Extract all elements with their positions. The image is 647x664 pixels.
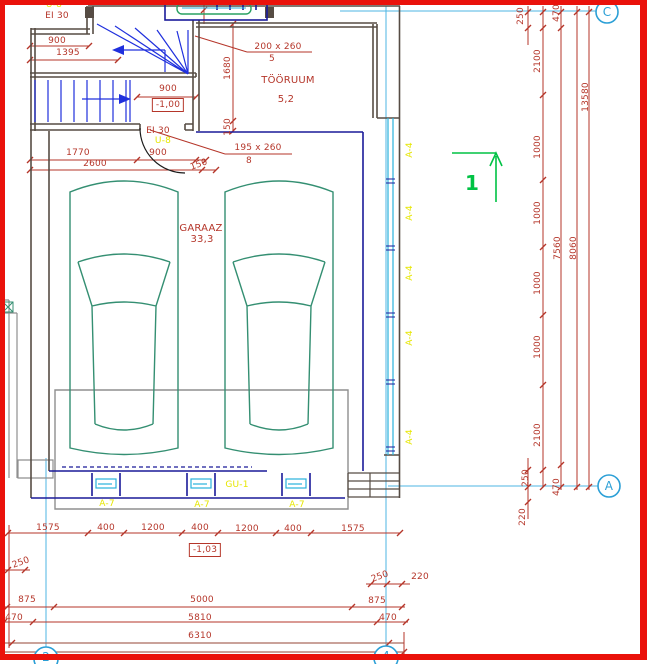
dim-label: 7560 bbox=[553, 236, 563, 260]
dim-label: 1000 bbox=[533, 135, 543, 159]
fire-rating: EI 30 bbox=[45, 11, 69, 21]
dim-label: 1395 bbox=[56, 48, 80, 58]
door-number: 8 bbox=[246, 156, 252, 166]
dim-label: 1575 bbox=[36, 523, 60, 533]
labels-layer: U-8EI 309001395900-1,00EI 30U-8177090015… bbox=[0, 0, 647, 664]
door-size: 200 x 260 bbox=[254, 42, 301, 52]
component-tag: A-7 bbox=[289, 500, 305, 510]
dim-label: 1000 bbox=[533, 201, 543, 225]
dim-label: 400 bbox=[97, 523, 115, 533]
dim-label: 250 bbox=[11, 555, 31, 570]
dim-label: 875 bbox=[18, 595, 36, 605]
dim-label: 13580 bbox=[581, 82, 591, 112]
grid-label: A bbox=[605, 481, 613, 491]
floor-plan-sheet: U-8EI 309001395900-1,00EI 30U-8177090015… bbox=[0, 0, 647, 664]
dim-label: 150 bbox=[223, 118, 233, 136]
dim-label: 2100 bbox=[533, 423, 543, 447]
dim-label: 1680 bbox=[223, 56, 233, 80]
door-size: 195 x 260 bbox=[234, 143, 281, 153]
dim-label: 1000 bbox=[533, 335, 543, 359]
room-area: 5,2 bbox=[278, 95, 295, 105]
room-area: 33,3 bbox=[190, 235, 213, 245]
dim-label: 150 bbox=[189, 157, 209, 172]
dim-label: 470 bbox=[5, 613, 23, 623]
level-marker: -1,03 bbox=[189, 543, 221, 557]
dim-label: 900 bbox=[48, 36, 66, 46]
viewport-border-bottom bbox=[0, 654, 647, 660]
dim-label: 400 bbox=[191, 523, 209, 533]
room-name: GARAAZ bbox=[179, 224, 222, 234]
dim-label: 2100 bbox=[533, 49, 543, 73]
viewport-border-left bbox=[0, 0, 5, 660]
window-tag: A-4 bbox=[405, 142, 415, 158]
window-tag: A-4 bbox=[405, 205, 415, 221]
dim-label: 900 bbox=[149, 148, 167, 158]
window-tag: A-4 bbox=[405, 429, 415, 445]
grid-label: C bbox=[603, 7, 612, 17]
dim-label: 1770 bbox=[66, 148, 90, 158]
level-marker: -1,00 bbox=[152, 98, 184, 112]
viewport-border-right bbox=[640, 0, 647, 660]
component-tag: A-7 bbox=[194, 500, 210, 510]
section-number: 1 bbox=[465, 178, 479, 188]
dim-label: 220 bbox=[518, 508, 528, 526]
dim-label: 470 bbox=[379, 613, 397, 623]
dim-label: 470 bbox=[552, 478, 562, 496]
dim-label: 470 bbox=[552, 4, 562, 22]
dim-label: 1200 bbox=[235, 524, 259, 534]
dim-label: 250 bbox=[370, 569, 390, 584]
dim-label: 250 bbox=[521, 469, 531, 487]
dim-label: 900 bbox=[159, 84, 177, 94]
dim-label: 220 bbox=[411, 572, 429, 582]
door-tag: U-8 bbox=[155, 136, 171, 146]
component-tag: A-7 bbox=[99, 499, 115, 509]
door-number: 5 bbox=[269, 54, 275, 64]
dim-label: 400 bbox=[284, 524, 302, 534]
fire-rating: EI 30 bbox=[146, 126, 170, 136]
room-name: TÖÖRUUM bbox=[261, 76, 314, 86]
dim-label: 1575 bbox=[341, 524, 365, 534]
dim-label: 5810 bbox=[188, 613, 212, 623]
dim-label: 5000 bbox=[190, 595, 214, 605]
dim-label: 1000 bbox=[533, 271, 543, 295]
dim-label: 1200 bbox=[141, 523, 165, 533]
dim-label: 2600 bbox=[83, 159, 107, 169]
dim-label: 6310 bbox=[188, 631, 212, 641]
viewport-border-top bbox=[0, 0, 647, 5]
dim-label: 8060 bbox=[569, 236, 579, 260]
dim-label: 250 bbox=[516, 7, 526, 25]
garage-door-tag: GU-1 bbox=[225, 480, 248, 490]
window-tag: A-4 bbox=[405, 265, 415, 281]
dim-label: 875 bbox=[368, 596, 386, 606]
window-tag: A-4 bbox=[405, 330, 415, 346]
